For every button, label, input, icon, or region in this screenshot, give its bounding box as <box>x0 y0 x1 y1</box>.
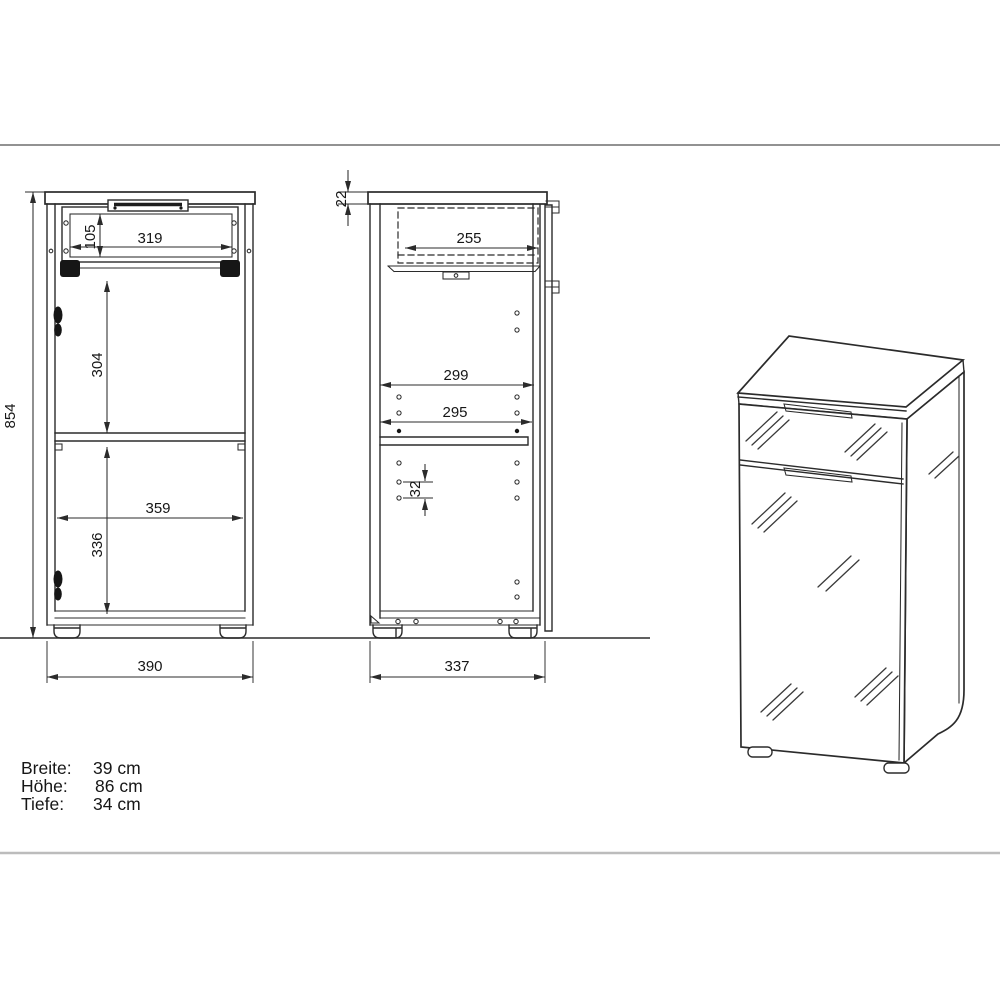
dim-336-label: 336 <box>89 532 106 557</box>
furniture-dimension-drawing: 854 105 319 304 359 336 390 <box>0 0 1000 1000</box>
dim-32-label: 32 <box>407 481 424 498</box>
side-foot-left <box>373 625 402 638</box>
handle-screw-right <box>179 206 182 209</box>
technical-drawing-page: 854 105 319 304 359 336 390 <box>0 0 1000 1000</box>
front-view: 854 105 319 304 359 336 390 <box>2 192 255 683</box>
dim-299-label: 299 <box>443 367 468 384</box>
shelf-pin-holes <box>397 311 519 599</box>
spec-breite-value: 39 cm <box>93 758 141 778</box>
dim-295-label: 295 <box>442 404 467 421</box>
drawer-slide-screw <box>454 274 458 278</box>
spec-hoehe-value: 86 cm <box>95 776 143 796</box>
foot-3d-left <box>748 747 772 757</box>
dim-337-label: 337 <box>444 658 469 675</box>
spec-hoehe-label: Höhe: <box>21 776 68 796</box>
dim-105-label: 105 <box>82 224 99 249</box>
dim-359-label: 359 <box>145 500 170 517</box>
side-foot-right <box>509 625 537 638</box>
dim-255-label: 255 <box>456 230 481 247</box>
dim-22-label: 22 <box>333 191 350 208</box>
dim-319-label: 319 <box>137 230 162 247</box>
dim-304-label: 304 <box>89 352 106 377</box>
drawer-runner-left <box>60 260 80 277</box>
shelf-support-right <box>238 444 245 450</box>
door-edge <box>545 205 552 631</box>
front-foot-right <box>220 625 246 638</box>
spec-breite-label: Breite: <box>21 758 72 778</box>
dim-854-label: 854 <box>2 403 19 428</box>
spec-tiefe-label: Tiefe: <box>21 794 64 814</box>
front-foot-left <box>54 625 80 638</box>
drawer-slide-clip <box>443 272 469 279</box>
side-bottom-screws <box>396 619 518 623</box>
foot-3d-right <box>884 763 909 773</box>
side-bottom-corner-detail <box>371 616 379 623</box>
drawer-runner-right <box>220 260 240 277</box>
specs-block: Breite: 39 cm Höhe: 86 cm Tiefe: 34 cm <box>21 758 143 814</box>
drawer-slide-mechanism <box>388 266 540 272</box>
spec-tiefe-value: 34 cm <box>93 794 141 814</box>
handle-screw-left <box>113 206 116 209</box>
side-view: 22 255 299 295 32 337 <box>333 170 559 683</box>
front-dimensions: 854 105 319 304 359 336 390 <box>2 192 253 683</box>
side-dimensions: 22 255 299 295 32 337 <box>333 170 545 683</box>
cabinet-top-face <box>738 336 963 407</box>
cabinet-side-face <box>904 372 964 763</box>
front-bottom-panel <box>47 611 253 625</box>
front-shelf <box>55 433 245 441</box>
dim-390-label: 390 <box>137 658 162 675</box>
shelf-support-left <box>55 444 62 450</box>
perspective-view <box>738 336 964 773</box>
side-top-panel <box>368 192 547 204</box>
side-shelf <box>380 437 528 445</box>
